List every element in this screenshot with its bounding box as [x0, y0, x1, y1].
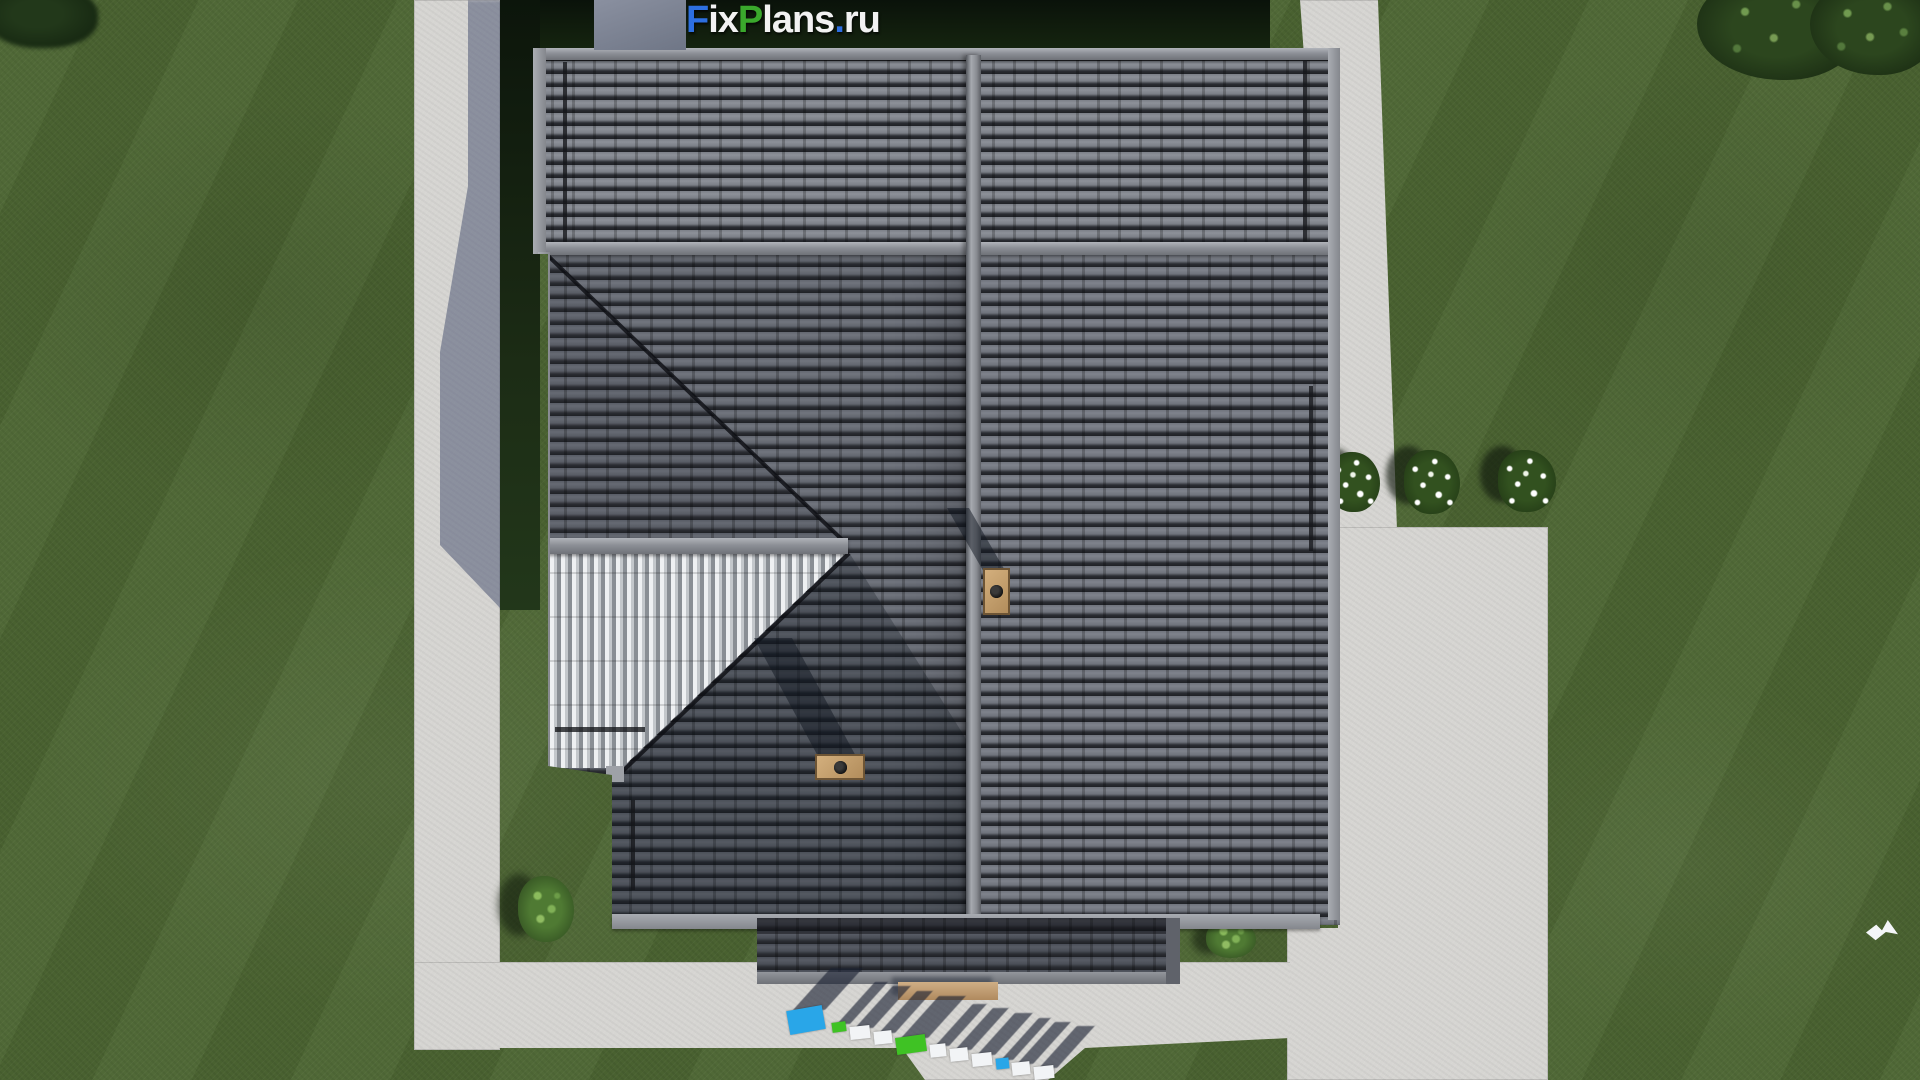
ridge-cap-middle: [533, 242, 1340, 255]
roof-north-band: [533, 48, 1340, 254]
ridge-cap-wing: [540, 538, 848, 554]
logo-part: .: [834, 0, 844, 42]
logo-part: ru: [844, 0, 880, 42]
bench: [898, 982, 998, 1000]
walkway-left: [414, 0, 500, 1050]
snow-guard: [563, 62, 567, 242]
chimney-1: [983, 568, 1010, 615]
gutter-pipe: [631, 800, 635, 890]
fascia-right: [1328, 48, 1340, 920]
snow-guard: [1309, 386, 1313, 551]
chimney-2: [815, 754, 865, 780]
flower-bush-2: [1404, 450, 1460, 514]
logo-part: ix: [708, 0, 738, 42]
logo-part: lans: [762, 0, 834, 42]
roof-east-slope: [980, 254, 1340, 925]
fascia-left: [533, 48, 546, 254]
logo-part: F: [686, 0, 708, 42]
snow-guard-wing: [555, 727, 645, 732]
ridge-cap-vertical: [966, 55, 981, 918]
flue-icon: [990, 585, 1003, 598]
logo-part: P: [738, 0, 762, 42]
gray-structure-top: [594, 0, 686, 50]
aerial-render: FixPlans.ru: [0, 0, 1920, 1080]
flower-bush-3: [1498, 450, 1556, 512]
porch-side-fascia: [1166, 918, 1180, 984]
snow-guard: [1303, 60, 1307, 242]
shrub-corner: [518, 876, 574, 942]
porch-shade: [757, 918, 1180, 934]
site-logo: FixPlans.ru: [686, 0, 956, 42]
flue-icon: [834, 761, 847, 774]
